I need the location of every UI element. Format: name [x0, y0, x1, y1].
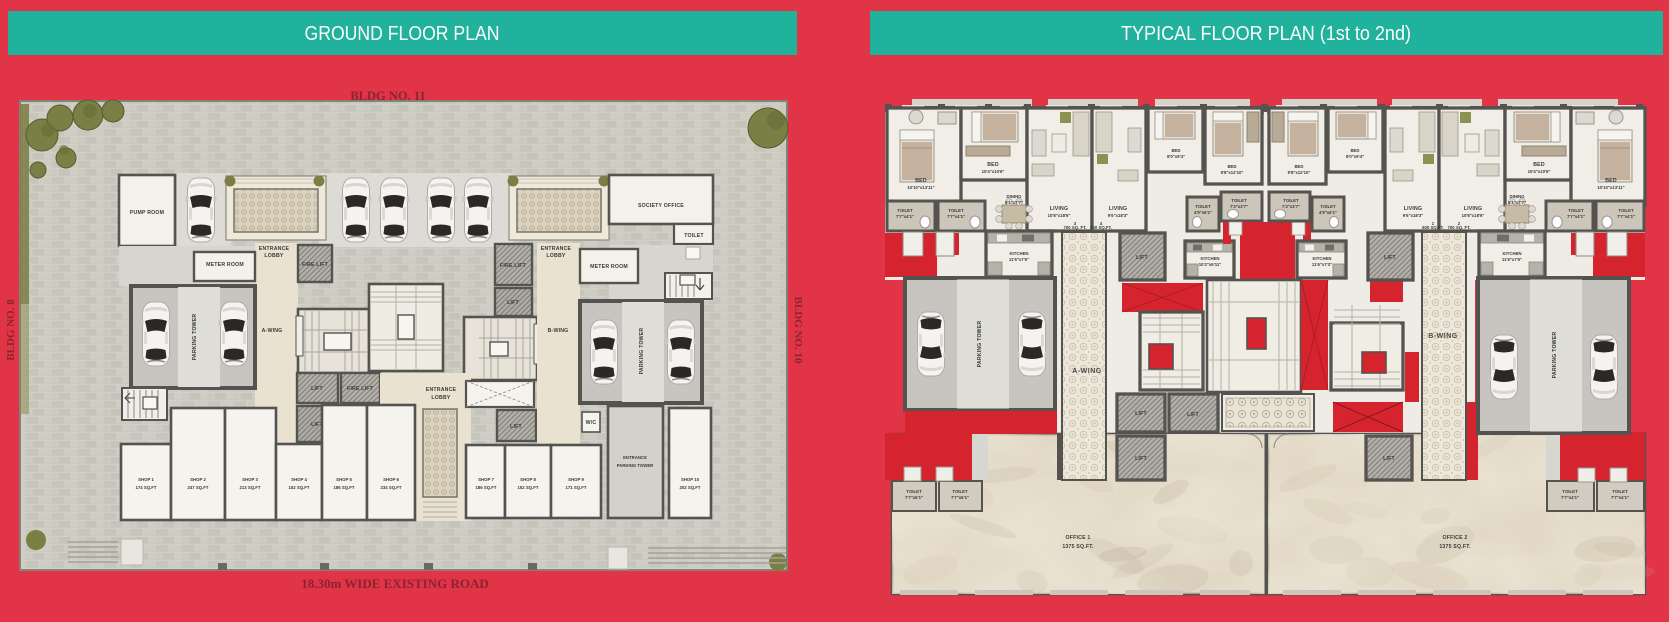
- svg-text:152 SQ.FT: 152 SQ.FT: [517, 485, 538, 490]
- svg-text:7'3"x3'7": 7'3"x3'7": [1282, 204, 1300, 209]
- svg-text:1375 SQ.FT.: 1375 SQ.FT.: [1439, 544, 1471, 550]
- svg-text:TOILET: TOILET: [1283, 198, 1299, 203]
- svg-text:TOILET: TOILET: [906, 489, 922, 494]
- svg-text:METER ROOM: METER ROOM: [206, 262, 244, 268]
- svg-text:BLDG NO. 11: BLDG NO. 11: [350, 89, 425, 103]
- svg-text:11'6"x7'5": 11'6"x7'5": [1502, 257, 1522, 262]
- svg-text:TOILET: TOILET: [1612, 489, 1628, 494]
- svg-text:TOILET: TOILET: [684, 233, 704, 239]
- svg-text:GROUND FLOOR PLAN: GROUND FLOOR PLAN: [305, 22, 500, 45]
- svg-text:9'8"x12'10": 9'8"x12'10": [1288, 170, 1311, 175]
- svg-text:BED: BED: [1605, 178, 1617, 184]
- svg-text:SOCIETY OFFICE: SOCIETY OFFICE: [638, 203, 684, 209]
- svg-text:KITCHEN: KITCHEN: [1502, 251, 1521, 256]
- svg-text:10'4"x10'6": 10'4"x10'6": [982, 169, 1005, 174]
- svg-text:LIFT: LIFT: [311, 386, 323, 392]
- svg-text:LIVING: LIVING: [1050, 206, 1069, 212]
- svg-text:600 SQ.FT.: 600 SQ.FT.: [1090, 225, 1112, 230]
- svg-text:213 SQ.FT: 213 SQ.FT: [239, 485, 260, 490]
- svg-text:LIVING: LIVING: [1464, 206, 1483, 212]
- svg-text:10'10"x13'11": 10'10"x13'11": [907, 185, 934, 190]
- svg-text:SHOP 5: SHOP 5: [336, 477, 352, 482]
- svg-text:LIFT: LIFT: [1187, 412, 1199, 418]
- svg-text:TYPICAL FLOOR PLAN (1st to 2nd: TYPICAL FLOOR PLAN (1st to 2nd): [1121, 22, 1411, 45]
- svg-text:TOILET: TOILET: [948, 208, 964, 213]
- svg-text:PARKING TOWER: PARKING TOWER: [639, 328, 645, 375]
- svg-text:186 SQ.FT: 186 SQ.FT: [475, 485, 496, 490]
- svg-text:SHOP 1: SHOP 1: [138, 477, 154, 482]
- svg-text:LIFT: LIFT: [1135, 456, 1147, 462]
- svg-text:LOBBY: LOBBY: [264, 253, 283, 259]
- svg-text:LIVING: LIVING: [1109, 206, 1128, 212]
- svg-text:LIVING: LIVING: [1404, 206, 1423, 212]
- svg-text:7'7"x4'1": 7'7"x4'1": [1617, 214, 1635, 219]
- svg-text:W/C: W/C: [586, 420, 597, 426]
- svg-text:SHOP 7: SHOP 7: [478, 477, 494, 482]
- svg-text:TOILET: TOILET: [1562, 489, 1578, 494]
- svg-text:BED: BED: [915, 178, 927, 184]
- svg-text:DINING: DINING: [1006, 194, 1022, 199]
- svg-text:9'6"x18'3": 9'6"x18'3": [1108, 213, 1128, 218]
- svg-text:6'1"x7'7": 6'1"x7'7": [1005, 200, 1023, 205]
- svg-text:KITCHEN: KITCHEN: [1009, 251, 1028, 256]
- svg-text:LOBBY: LOBBY: [546, 253, 565, 259]
- svg-text:4'9"x6'1": 4'9"x6'1": [1194, 210, 1212, 215]
- svg-text:SHOP 9: SHOP 9: [568, 477, 584, 482]
- svg-text:B-WING: B-WING: [1428, 333, 1457, 340]
- svg-text:FIRE LIFT: FIRE LIFT: [347, 386, 374, 392]
- svg-text:7'7"x4'1": 7'7"x4'1": [1567, 214, 1585, 219]
- svg-text:ENTRANCE: ENTRANCE: [259, 246, 290, 252]
- svg-text:9'6"x18'3": 9'6"x18'3": [1403, 213, 1423, 218]
- svg-text:KITCHEN: KITCHEN: [1312, 256, 1331, 261]
- svg-text:10'2"x6'11": 10'2"x6'11": [1199, 262, 1222, 267]
- svg-text:BLDG NO. 8: BLDG NO. 8: [5, 299, 17, 361]
- svg-text:LOBBY: LOBBY: [431, 395, 450, 401]
- svg-text:7'7"x6'1": 7'7"x6'1": [951, 495, 969, 500]
- svg-text:171 SQ.FT: 171 SQ.FT: [565, 485, 586, 490]
- svg-text:11'6"x7'5": 11'6"x7'5": [1009, 257, 1029, 262]
- svg-text:LIFT: LIFT: [1135, 411, 1147, 417]
- svg-text:TOILET: TOILET: [1568, 208, 1584, 213]
- svg-text:8'0"x9'4": 8'0"x9'4": [1167, 154, 1185, 159]
- svg-text:BED: BED: [1294, 164, 1303, 169]
- svg-text:BLDG NO. 10: BLDG NO. 10: [792, 297, 804, 364]
- svg-text:10'8"x18'6": 10'8"x18'6": [1462, 213, 1485, 218]
- svg-text:PARKING TOWER: PARKING TOWER: [1552, 332, 1558, 379]
- svg-text:10'4"x10'6": 10'4"x10'6": [1528, 169, 1551, 174]
- svg-text:PUMP ROOM: PUMP ROOM: [130, 210, 164, 216]
- svg-text:SHOP 3: SHOP 3: [242, 477, 258, 482]
- svg-text:LIFT: LIFT: [1384, 255, 1396, 261]
- svg-text:A-WING: A-WING: [262, 328, 283, 334]
- svg-text:BED: BED: [1533, 162, 1545, 168]
- svg-text:METER ROOM: METER ROOM: [590, 264, 628, 270]
- svg-text:10'10"x13'11": 10'10"x13'11": [1597, 185, 1624, 190]
- svg-text:PARKING TOWER: PARKING TOWER: [192, 314, 198, 361]
- svg-text:SHOP 8: SHOP 8: [520, 477, 536, 482]
- svg-text:6'1"x7'7": 6'1"x7'7": [1508, 200, 1526, 205]
- svg-text:SHOP 10: SHOP 10: [681, 477, 700, 482]
- svg-text:ENTRANCE: ENTRANCE: [541, 246, 572, 252]
- svg-text:TOILET: TOILET: [897, 208, 913, 213]
- svg-text:7'7"x4'1": 7'7"x4'1": [1561, 495, 1579, 500]
- svg-text:11'6"x7'3": 11'6"x7'3": [1312, 262, 1332, 267]
- svg-text:TOILET: TOILET: [1618, 208, 1634, 213]
- svg-text:TOILET: TOILET: [1195, 204, 1211, 209]
- svg-text:B-WING: B-WING: [548, 328, 569, 334]
- svg-text:202 SQ.FT: 202 SQ.FT: [679, 485, 700, 490]
- svg-text:SHOP 4: SHOP 4: [291, 477, 307, 482]
- svg-text:7'7"x4'1": 7'7"x4'1": [896, 214, 914, 219]
- svg-text:LIFT: LIFT: [510, 424, 522, 430]
- svg-text:700 SQ. FT.: 700 SQ. FT.: [1448, 225, 1471, 230]
- svg-text:7'7"x4'1": 7'7"x4'1": [1611, 495, 1629, 500]
- svg-text:SHOP 2: SHOP 2: [190, 477, 206, 482]
- svg-text:BED: BED: [1171, 148, 1180, 153]
- svg-text:BED: BED: [1350, 148, 1359, 153]
- svg-text:BED: BED: [987, 162, 999, 168]
- svg-text:ENTRANCE: ENTRANCE: [623, 455, 647, 460]
- svg-text:PARKING TOWER: PARKING TOWER: [617, 463, 654, 468]
- svg-text:18.30m WIDE EXISTING ROAD: 18.30m WIDE EXISTING ROAD: [301, 576, 489, 591]
- svg-text:TOILET: TOILET: [1320, 204, 1336, 209]
- svg-text:247 SQ.FT: 247 SQ.FT: [187, 485, 208, 490]
- svg-text:234 SQ.FT: 234 SQ.FT: [380, 485, 401, 490]
- svg-text:8'0"x9'4": 8'0"x9'4": [1346, 154, 1364, 159]
- svg-text:KITCHEN: KITCHEN: [1200, 256, 1219, 261]
- svg-text:FIRE LIFT: FIRE LIFT: [500, 263, 527, 269]
- svg-text:1375 SQ.FT.: 1375 SQ.FT.: [1062, 544, 1094, 550]
- svg-text:600 SQ.FT.: 600 SQ.FT.: [1422, 225, 1444, 230]
- svg-text:ENTRANCE: ENTRANCE: [426, 387, 457, 393]
- svg-text:152 SQ.FT: 152 SQ.FT: [288, 485, 309, 490]
- svg-text:TOILET: TOILET: [1231, 198, 1247, 203]
- svg-text:LIFT: LIFT: [1383, 456, 1395, 462]
- svg-text:4'9"x6'1": 4'9"x6'1": [1319, 210, 1337, 215]
- svg-text:BED: BED: [1227, 164, 1236, 169]
- svg-text:186 SQ.FT: 186 SQ.FT: [333, 485, 354, 490]
- svg-text:A-WING: A-WING: [1072, 368, 1101, 375]
- svg-text:PARKING TOWER: PARKING TOWER: [977, 321, 983, 368]
- svg-text:DINING: DINING: [1509, 194, 1525, 199]
- svg-text:OFFICE 2: OFFICE 2: [1443, 535, 1468, 541]
- svg-text:LIFT: LIFT: [507, 300, 519, 306]
- svg-text:TOILET: TOILET: [952, 489, 968, 494]
- svg-text:7'7"x6'1": 7'7"x6'1": [905, 495, 923, 500]
- svg-text:7'3"x3'7": 7'3"x3'7": [1230, 204, 1248, 209]
- svg-text:FIRE LIFT: FIRE LIFT: [302, 262, 329, 268]
- svg-text:LIFT: LIFT: [1136, 255, 1148, 261]
- svg-text:7'7"x4'1": 7'7"x4'1": [947, 214, 965, 219]
- svg-text:9'8"x12'10": 9'8"x12'10": [1221, 170, 1244, 175]
- svg-text:174 SQ.FT: 174 SQ.FT: [135, 485, 156, 490]
- svg-text:SHOP 6: SHOP 6: [383, 477, 399, 482]
- svg-text:10'8"x18'6": 10'8"x18'6": [1048, 213, 1071, 218]
- svg-text:OFFICE 1: OFFICE 1: [1066, 535, 1091, 541]
- svg-text:700 SQ. FT.: 700 SQ. FT.: [1064, 225, 1087, 230]
